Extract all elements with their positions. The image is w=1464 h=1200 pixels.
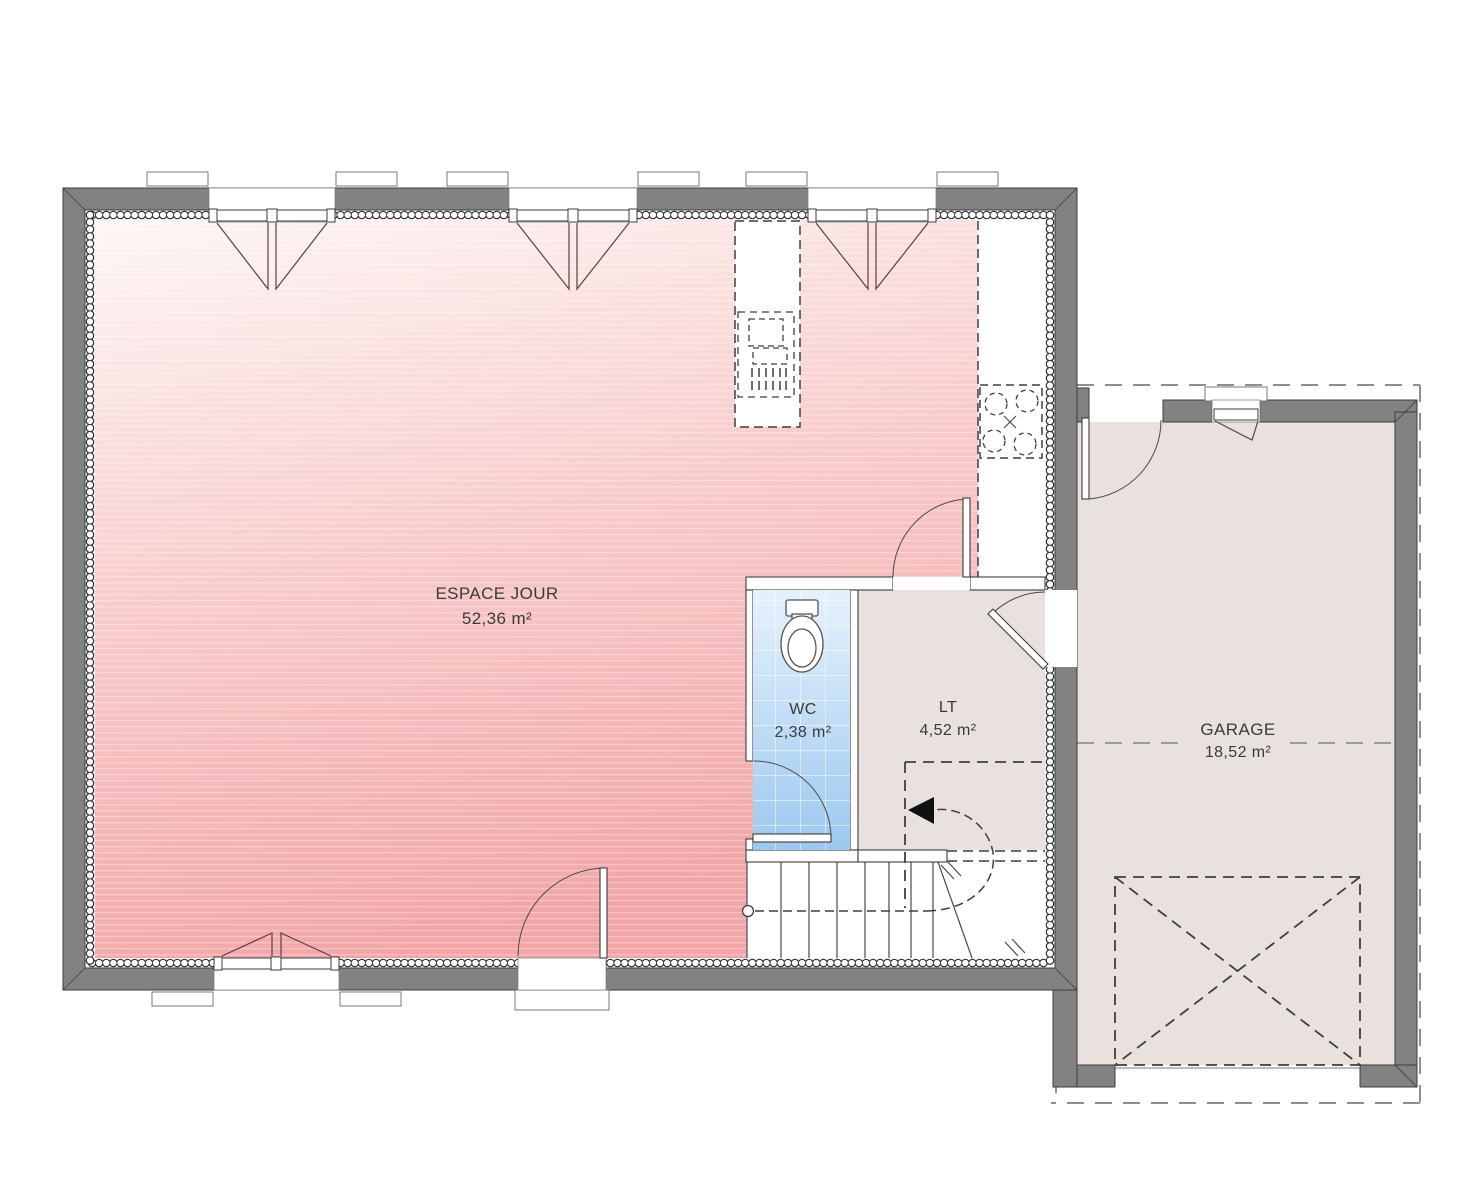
floor-plan: ESPACE JOUR 52,36 m² WC 2,38 m² LT 4,52 …: [0, 0, 1464, 1200]
kitchen-island-area: [735, 220, 800, 427]
toilet-icon: [781, 600, 823, 672]
room-area-wc: 2,38 m²: [774, 724, 831, 741]
kitchen-counter-area: [978, 220, 1045, 577]
room-label-espace-jour: ESPACE JOUR: [435, 584, 558, 603]
floor-plan-drawing: ESPACE JOUR 52,36 m² WC 2,38 m² LT 4,52 …: [0, 0, 1464, 1200]
room-area-espace-jour: 52,36 m²: [462, 609, 532, 628]
wc-room: [753, 590, 850, 850]
stair-floor: [747, 850, 1045, 958]
room-label-lt: LT: [939, 699, 957, 716]
room-area-garage: 18,52 m²: [1205, 744, 1272, 761]
room-label-wc: WC: [789, 701, 816, 718]
room-label-garage: GARAGE: [1200, 720, 1275, 739]
room-area-lt: 4,52 m²: [919, 722, 976, 739]
